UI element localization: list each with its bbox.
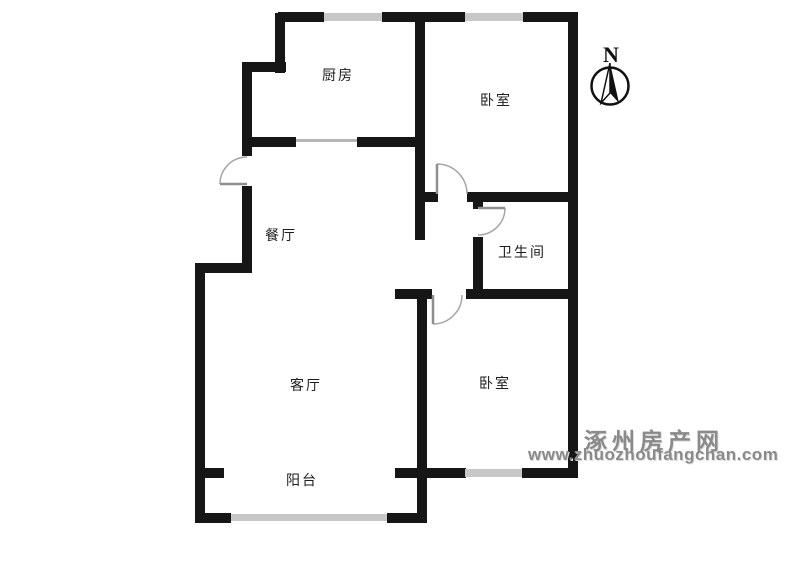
bedroom-south-door [433, 295, 462, 324]
room-label-bedroom-north: 卧室 [480, 90, 512, 110]
watermark-site-url: www.zhuozhoufangchan.com [528, 445, 778, 465]
room-label-balcony: 阳台 [286, 470, 318, 490]
compass-north-letter: N [603, 42, 619, 67]
room-label-kitchen: 厨房 [322, 65, 354, 85]
room-label-bathroom: 卫生间 [498, 242, 546, 262]
room-label-dining: 餐厅 [265, 225, 297, 245]
floor-plan: N 厨房 卧室 餐厅 卫生间 客厅 卧室 阳台 涿州房产网 www.zhuozh… [0, 0, 800, 563]
entry-door [220, 157, 247, 184]
room-label-bedroom-south: 卧室 [479, 373, 511, 393]
plan-graphics: N [0, 0, 800, 563]
bedroom-north-door [437, 164, 467, 194]
bathroom-door [478, 208, 505, 235]
room-label-living: 客厅 [290, 375, 322, 395]
north-compass: N [592, 42, 629, 105]
